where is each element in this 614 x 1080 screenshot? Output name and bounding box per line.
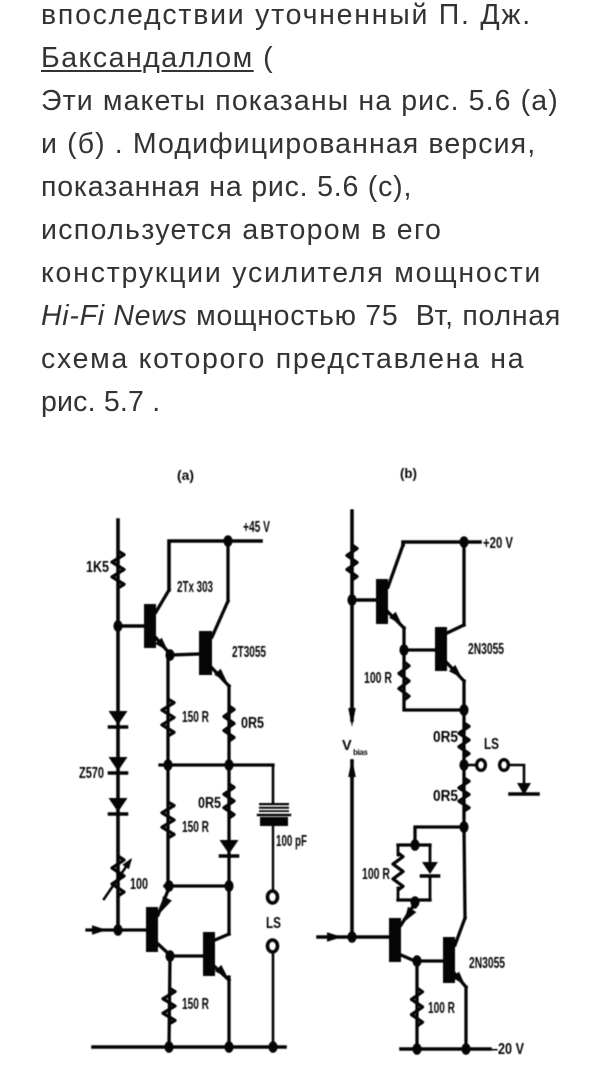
svg-text:LS: LS	[266, 915, 281, 932]
svg-text:+45 V: +45 V	[243, 519, 270, 536]
svg-text:100 R: 100 R	[428, 1000, 455, 1017]
svg-text:150 R: 150 R	[182, 709, 209, 726]
svg-text:–20 V: –20 V	[491, 1041, 525, 1058]
svg-text:(b): (b)	[400, 465, 417, 481]
svg-text:+20 V: +20 V	[483, 535, 513, 552]
svg-text:1K5: 1K5	[86, 559, 109, 576]
svg-text:Z570: Z570	[79, 765, 104, 782]
svg-text:V: V	[342, 738, 352, 754]
svg-text:0R5: 0R5	[198, 795, 221, 812]
svg-text:150 R: 150 R	[182, 819, 209, 836]
svg-text:100 R: 100 R	[362, 866, 390, 883]
svg-text:LS: LS	[484, 736, 499, 753]
svg-text:100: 100	[130, 876, 148, 893]
svg-text:150 R: 150 R	[182, 996, 209, 1013]
svg-text:2N3055: 2N3055	[468, 641, 504, 658]
svg-text:100 pF: 100 pF	[276, 833, 307, 850]
svg-text:bias: bias	[353, 748, 368, 757]
svg-text:0R5: 0R5	[241, 715, 264, 732]
svg-text:(a): (a)	[177, 467, 194, 483]
svg-text:100 R: 100 R	[364, 670, 392, 687]
svg-text:0R5: 0R5	[433, 788, 458, 805]
svg-text:2N3055: 2N3055	[469, 955, 505, 972]
svg-text:2Tx 303: 2Tx 303	[177, 579, 213, 596]
svg-text:2T3055: 2T3055	[232, 644, 266, 661]
svg-text:0R5: 0R5	[433, 729, 458, 746]
